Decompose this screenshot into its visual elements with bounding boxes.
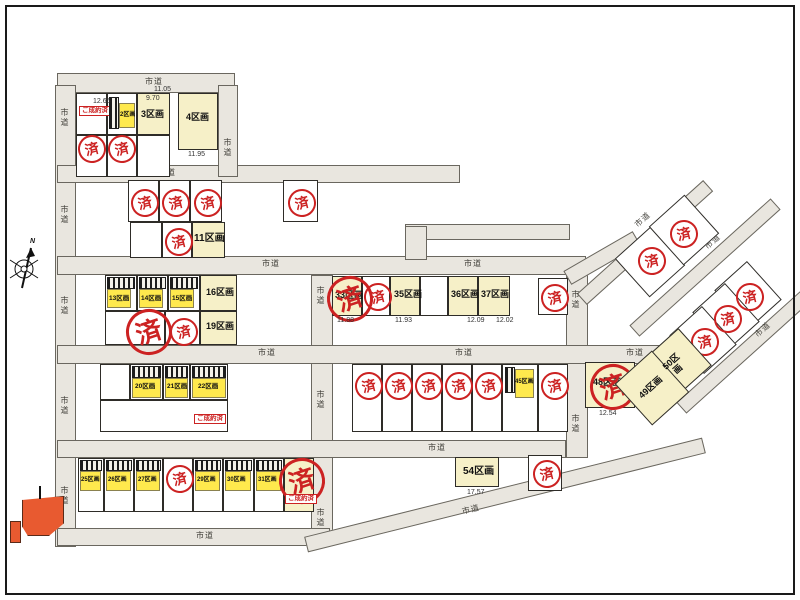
dim-label: 12.09 (467, 317, 485, 324)
lot-label-15: 15区画 (172, 295, 192, 302)
parking-stripes (106, 460, 132, 471)
lot-label-22: 22区画 (198, 383, 218, 390)
dim-label: 17.57 (467, 489, 485, 496)
dim-label: 12.65 (93, 98, 111, 105)
parking-stripes (170, 277, 198, 289)
lot-label-36: 36区画 (451, 290, 479, 300)
lot-label-31: 31区画 (258, 477, 277, 484)
road-stub-v (405, 226, 427, 260)
road-label: 市道 (145, 78, 163, 86)
dim-label: 11.88 (337, 317, 354, 324)
road-left-vertical (55, 85, 76, 547)
subdivision-map: 市道 市道 市道 市道 市道 市道 市道 市道 市道 市道 市道 市道 市道 市… (0, 0, 800, 600)
lot-label-37: 37区画 (481, 290, 509, 300)
lot-cell (130, 222, 162, 258)
red-sold-label: ご成約済 (194, 414, 226, 424)
road-label: 市道 (626, 349, 644, 357)
road-label: 市道 (196, 532, 214, 540)
road-stub-h (405, 224, 570, 240)
road-label: 市道 (461, 504, 480, 516)
dim-label: 11.93 (395, 317, 412, 324)
lot-label-21: 21区画 (167, 383, 187, 390)
road-label: 市道 (258, 349, 276, 357)
road-h3-main (57, 256, 586, 275)
road-v-top (218, 85, 238, 177)
road-v-mid (311, 275, 333, 546)
parking-stripes (225, 460, 252, 471)
lot-label-35: 35区画 (394, 290, 422, 300)
road-label: 市道 (571, 414, 579, 434)
road-label: 市道 (428, 444, 446, 452)
road-label: 市道 (60, 108, 68, 128)
lot-cell (100, 364, 130, 400)
road-label: 市道 (60, 396, 68, 416)
road-label: 市道 (223, 138, 231, 158)
lot-label-45: 45区画 (515, 379, 534, 386)
parking-stripes (192, 366, 226, 378)
road-bottom (57, 528, 330, 546)
dim-label: 9.70 (146, 95, 160, 102)
road-label: 市道 (262, 260, 280, 268)
parking-stripes (165, 366, 188, 378)
lot-label-4: 4区画 (186, 113, 209, 123)
lot-label-27: 27区画 (138, 477, 157, 484)
road-label: 市道 (316, 390, 324, 410)
red-sold-label: ご成約済 (79, 106, 111, 116)
lot-label-30: 30区画 (227, 477, 246, 484)
lot-label-11: 11区画 (194, 233, 225, 244)
lot-cell (420, 276, 448, 316)
parking-stripes (256, 460, 282, 471)
parking-stripes (195, 460, 221, 471)
compass-rose (2, 238, 44, 294)
lot-label-19: 19区画 (206, 322, 234, 332)
dim-label: 11.05 (154, 86, 171, 93)
lot-label-14: 14区画 (141, 295, 161, 302)
lot-label-29: 29区画 (197, 477, 216, 484)
road-label: 市道 (571, 290, 579, 310)
parking-stripes (139, 277, 166, 289)
road-label: 市道 (316, 286, 324, 306)
dim-label: 12.02 (496, 317, 514, 324)
road-label: 市道 (316, 508, 324, 528)
flag-pole (39, 486, 41, 499)
parking-stripes (80, 460, 102, 471)
lot-label-3: 3区画 (141, 110, 164, 120)
lot-label-54: 54区画 (463, 466, 494, 477)
red-sold-label: ご成約済 (285, 494, 317, 504)
reserve-marker (10, 521, 21, 543)
dim-label: 12.54 (599, 410, 617, 417)
road-label: 市道 (60, 205, 68, 225)
road-label: 市道 (455, 349, 473, 357)
lot-label-26: 26区画 (108, 477, 127, 484)
parking-stripes (505, 367, 515, 393)
road-h5 (57, 440, 566, 458)
road-label: 市道 (60, 296, 68, 316)
road-label: 市道 (464, 260, 482, 268)
lot-label-2: 2区画 (120, 112, 135, 119)
lot-label-16: 16区画 (206, 288, 234, 298)
lot-cell (137, 135, 170, 177)
compass-north-label: N (30, 238, 35, 246)
parking-stripes (107, 277, 135, 289)
lot-label-20: 20区画 (135, 383, 155, 390)
parking-stripes (132, 366, 161, 378)
lot-label-13: 13区画 (109, 295, 129, 302)
parking-stripes (136, 460, 161, 471)
dim-label: 11.95 (188, 151, 205, 158)
lot-label-25: 25区画 (81, 477, 100, 484)
